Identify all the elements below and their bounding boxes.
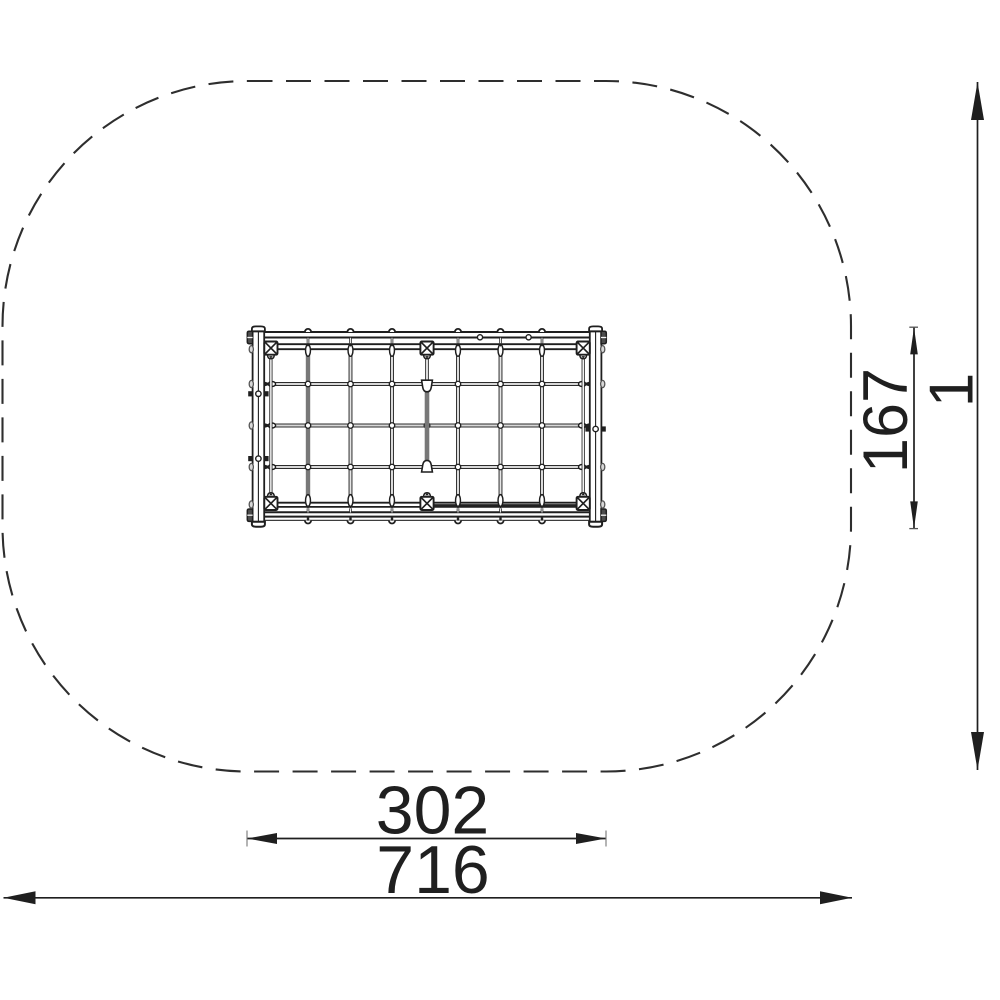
svg-text:1: 1 — [918, 373, 987, 407]
svg-text:716: 716 — [376, 832, 489, 908]
svg-text:167: 167 — [851, 368, 921, 473]
